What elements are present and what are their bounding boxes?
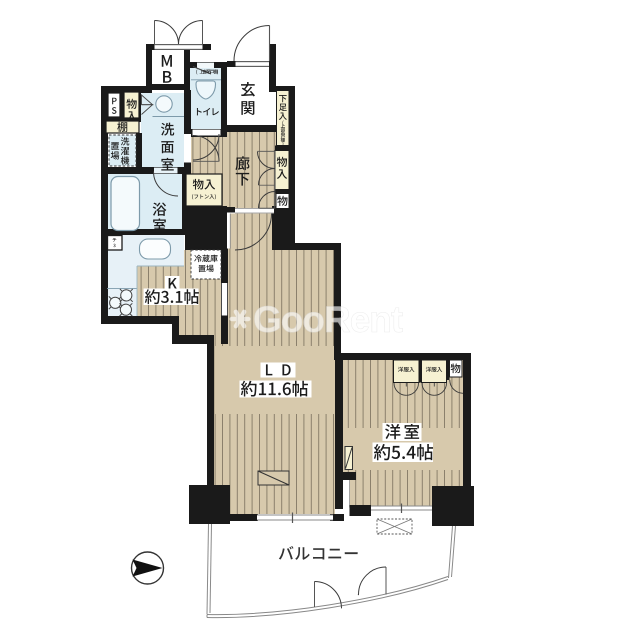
svg-text:GooRent: GooRent bbox=[253, 299, 403, 340]
